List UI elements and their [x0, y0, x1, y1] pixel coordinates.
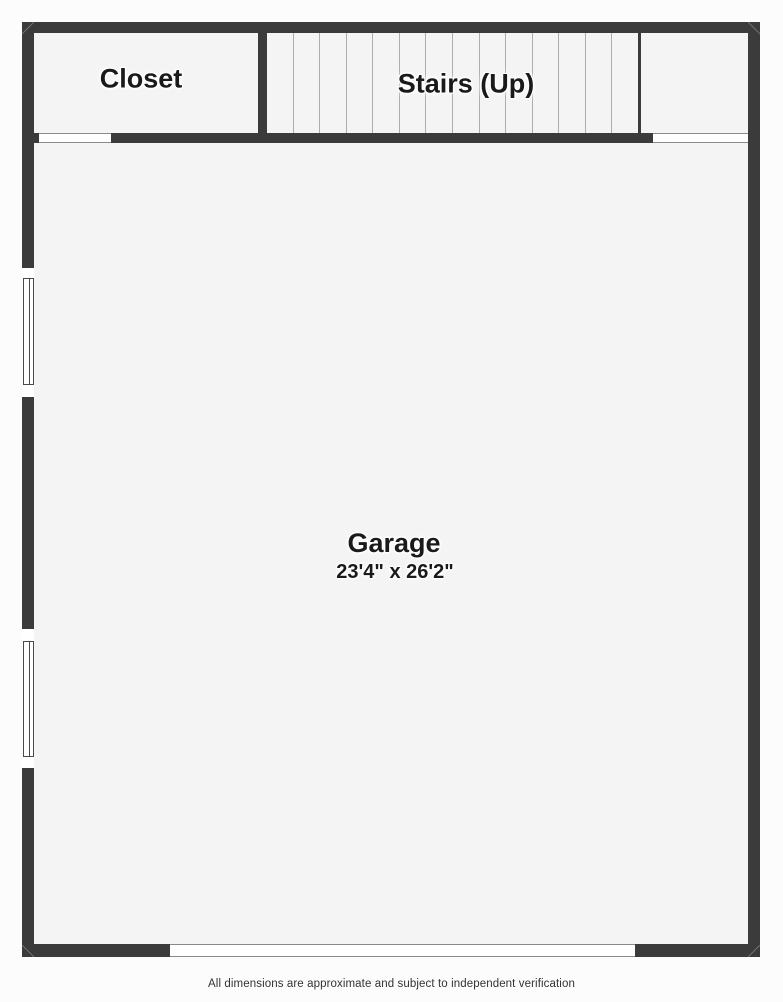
stairs-landing-divider-line: [638, 33, 641, 133]
stair-tread-line: [558, 33, 559, 133]
wall-closet-stairs-bottom: [22, 133, 653, 143]
window-lower: [22, 629, 34, 768]
wall-right: [748, 22, 760, 957]
stair-tread-line: [372, 33, 373, 133]
stair-tread-line: [293, 33, 294, 133]
stairs-door-opening: [653, 133, 748, 143]
wall-closet-stairs-divider: [258, 33, 267, 143]
closet-door-opening: [39, 133, 111, 143]
room-label-closet: Closet: [100, 64, 183, 95]
room-label-stairs: Stairs (Up): [398, 69, 535, 100]
floor-area: [22, 22, 760, 957]
wall-left: [22, 22, 34, 957]
room-dimensions-garage: 23'4" x 26'2": [336, 559, 453, 585]
stair-tread-line: [585, 33, 586, 133]
window-upper: [22, 268, 34, 397]
garage-door-opening: [170, 944, 635, 957]
room-label-garage: Garage: [335, 527, 452, 559]
stair-tread-line: [611, 33, 612, 133]
stair-tread-line: [319, 33, 320, 133]
floorplan: Closet Stairs (Up) Garage 23'4" x 26'2" …: [0, 0, 783, 1002]
wall-top: [22, 22, 760, 33]
window-upper-glass: [23, 278, 34, 385]
disclaimer-text: All dimensions are approximate and subje…: [0, 978, 783, 990]
window-lower-glass: [23, 641, 34, 757]
stair-tread-line: [346, 33, 347, 133]
room-label-garage-block: Garage 23'4" x 26'2": [335, 527, 452, 585]
